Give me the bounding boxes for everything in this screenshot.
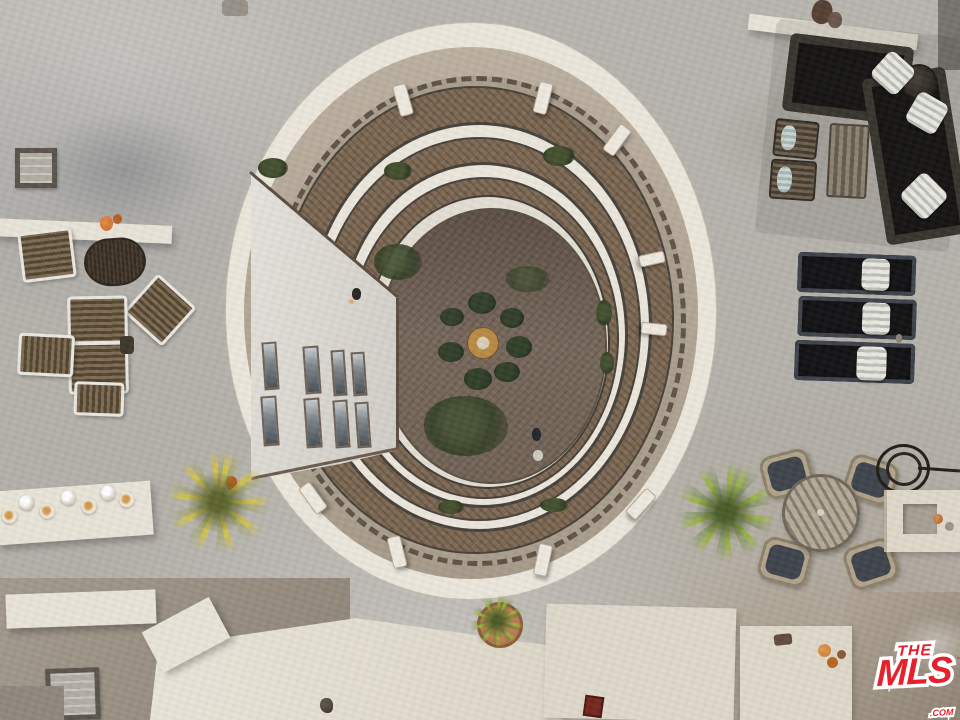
courtyard-fountain xyxy=(467,327,499,359)
dark-roof-band xyxy=(0,686,64,720)
white-roof-block xyxy=(737,626,852,720)
potted-plant-top-view xyxy=(468,594,526,648)
lamp-glow xyxy=(348,298,355,305)
string-light-bulb xyxy=(81,498,97,514)
shrub xyxy=(438,342,464,362)
shrub xyxy=(468,292,496,314)
umbrella-base xyxy=(828,12,842,28)
balcony-plant xyxy=(438,500,464,514)
white-planter-block xyxy=(884,490,960,552)
courtyard-tree xyxy=(506,266,550,292)
white-sack xyxy=(533,450,543,461)
orange-pot xyxy=(818,644,831,657)
chair-cushion xyxy=(780,125,798,151)
palm-tree-top-view xyxy=(166,450,270,554)
string-light-bulb xyxy=(39,503,55,519)
window xyxy=(260,396,279,447)
patio-chair xyxy=(17,333,75,378)
chair-cushion xyxy=(776,166,793,193)
shrub xyxy=(500,308,524,328)
parapet-step xyxy=(5,589,156,628)
shrub xyxy=(494,362,520,382)
table-divider xyxy=(71,341,125,346)
chaise-lounge-group xyxy=(794,252,923,392)
copper-fitting xyxy=(837,650,846,659)
light-bulb-ledge xyxy=(0,481,154,546)
roof-vent-small xyxy=(896,334,902,343)
balcony-plant xyxy=(596,300,612,326)
chaise-lounge xyxy=(797,252,916,296)
wood-slat-bench xyxy=(826,123,870,199)
shrub xyxy=(464,368,492,390)
coiled-cable xyxy=(886,452,922,486)
wall-edge xyxy=(396,298,399,450)
string-light-bulb xyxy=(2,508,18,524)
seat-cushion xyxy=(764,543,807,581)
roof-vent-stub xyxy=(222,0,248,16)
orange-pot xyxy=(827,657,838,668)
chaise-lounge xyxy=(794,340,915,384)
window xyxy=(350,352,367,397)
string-light-bulb xyxy=(19,495,35,511)
person xyxy=(532,428,541,441)
shrub xyxy=(506,336,532,358)
window xyxy=(302,346,321,395)
window xyxy=(303,398,322,449)
mls-watermark-logo: THETHE MLSMLS ™ .COM.COM xyxy=(867,644,960,719)
planter-recess xyxy=(903,504,937,534)
balcony-plant xyxy=(384,162,412,180)
orange-pot xyxy=(113,214,122,224)
corner-shadow xyxy=(938,0,960,70)
courtyard-tree xyxy=(424,396,508,456)
bird xyxy=(320,698,333,713)
balcony-plant xyxy=(543,146,575,166)
palm-tree-top-view xyxy=(676,462,776,562)
balcony-plant xyxy=(540,498,568,512)
mls-logo-mls: MLSMLS xyxy=(868,656,960,690)
patio-chair xyxy=(17,227,77,283)
string-light-bulb xyxy=(119,492,135,508)
red-roof-vent xyxy=(583,695,605,718)
patio-chair xyxy=(73,381,124,417)
mls-logo-trademark: ™ xyxy=(956,657,960,664)
balcony-plant xyxy=(600,352,614,374)
wicker-armchair xyxy=(82,236,147,288)
chaise-pillow xyxy=(862,302,891,335)
orange-pot xyxy=(100,216,113,231)
table-center-cap xyxy=(817,509,824,516)
balcony-plant xyxy=(258,158,288,178)
courtyard-column xyxy=(640,322,667,337)
mls-logo-com: .COM.COM xyxy=(930,709,954,717)
white-roof-block xyxy=(544,604,737,720)
wood-deck-chair xyxy=(772,118,820,160)
chaise-pillow xyxy=(856,346,887,381)
skylight-hatch xyxy=(15,148,57,188)
chaise-pillow xyxy=(861,258,890,291)
roof-debris xyxy=(773,633,792,646)
round-dining-table xyxy=(782,474,860,552)
shrub xyxy=(440,308,464,326)
copper-fitting xyxy=(933,514,943,524)
wood-deck-chair xyxy=(769,158,818,201)
knob xyxy=(945,522,954,531)
patio-chair xyxy=(123,273,196,346)
rooftop-aerial-photo: THETHE MLSMLS ™ .COM.COM xyxy=(0,0,960,720)
string-light-bulb xyxy=(100,485,116,501)
courtyard-tree xyxy=(374,244,422,280)
dark-item xyxy=(120,336,134,354)
string-light-bulb xyxy=(60,490,76,506)
